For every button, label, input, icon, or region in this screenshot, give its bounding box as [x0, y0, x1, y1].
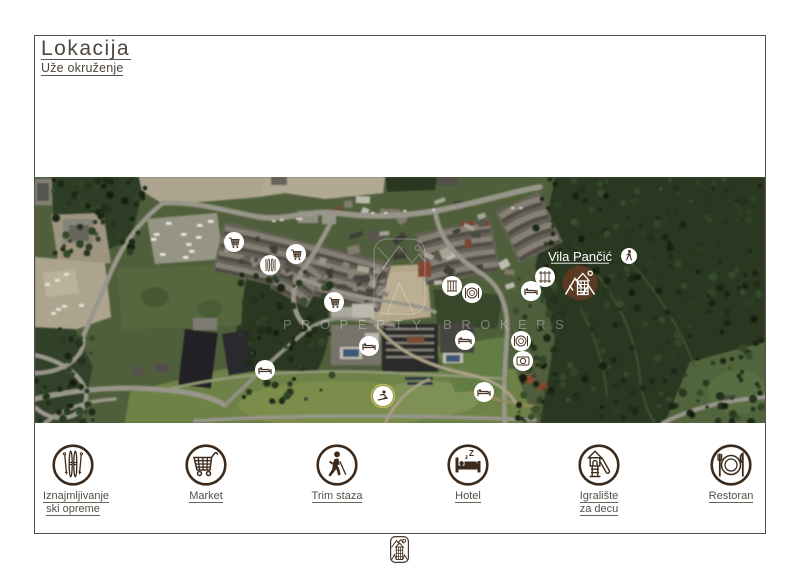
svg-text:Z: Z: [469, 449, 474, 458]
svg-text:z: z: [465, 455, 468, 461]
svg-text:PROPERTY BROKERS: PROPERTY BROKERS: [283, 317, 573, 332]
svg-text:Vila Pančić: Vila Pančić: [548, 249, 613, 264]
